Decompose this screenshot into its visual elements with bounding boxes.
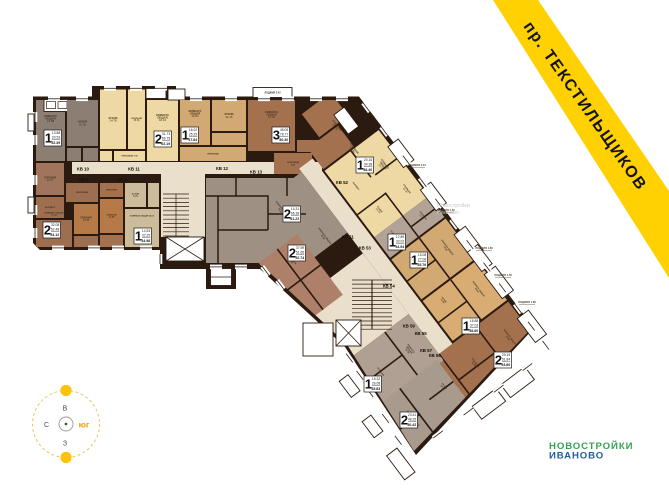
- svg-text:КВ 59: КВ 59: [403, 324, 416, 329]
- svg-text:ПРИХОЖАЯ: ПРИХОЖАЯ: [207, 153, 219, 156]
- svg-text:Новостройки: Новостройки: [437, 202, 470, 209]
- svg-text:52.48: 52.48: [51, 227, 59, 231]
- svg-text:ИВАНОВО: ИВАНОВО: [549, 451, 604, 462]
- svg-text:5.25: 5.25: [133, 195, 138, 198]
- svg-text:51.84: 51.84: [502, 357, 510, 361]
- svg-text:78.77: 78.77: [280, 132, 288, 136]
- svg-text:ПРИХОЖАЯ: ПРИХОЖАЯ: [76, 191, 89, 194]
- svg-text:17.22: 17.22: [51, 214, 58, 217]
- svg-text:36.60: 36.60: [469, 329, 478, 333]
- svg-text:З: З: [63, 441, 67, 448]
- svg-text:37.84: 37.84: [188, 138, 197, 142]
- svg-text:ЛОДЖИЯ 2.04: ЛОДЖИЯ 2.04: [408, 163, 426, 167]
- svg-text:КВ 11: КВ 11: [128, 167, 140, 172]
- svg-text:ПРИХОЖАЯ 7.80: ПРИХОЖАЯ 7.80: [121, 155, 138, 158]
- svg-text:11.15: 11.15: [225, 115, 232, 119]
- svg-text:61.22: 61.22: [290, 217, 299, 221]
- svg-text:48.25: 48.25: [408, 417, 416, 421]
- svg-text:ПРИХОЖАЯ: ПРИХОЖАЯ: [106, 189, 118, 192]
- svg-text:Иваново: Иваново: [437, 210, 459, 216]
- svg-text:34.98: 34.98: [141, 239, 150, 243]
- svg-text:16.02: 16.02: [191, 114, 199, 118]
- svg-text:18.42: 18.42: [159, 118, 167, 122]
- svg-text:53.60: 53.60: [501, 363, 510, 367]
- svg-text:35.76: 35.76: [417, 263, 426, 267]
- svg-text:С: С: [44, 422, 49, 429]
- svg-text:10.35: 10.35: [79, 122, 87, 126]
- svg-text:34.94: 34.94: [395, 245, 404, 249]
- svg-text:КОРИДОР: КОРИДОР: [45, 207, 56, 209]
- svg-text:КВ 51: КВ 51: [342, 234, 355, 239]
- svg-text:КОМНАТА ОБЩАЯ 14.53: КОМНАТА ОБЩАЯ 14.53: [130, 215, 155, 218]
- svg-text:КВ 9: КВ 9: [79, 178, 89, 183]
- svg-text:27.06: 27.06: [418, 257, 426, 261]
- svg-text:46.40: 46.40: [363, 168, 372, 172]
- svg-text:62.19: 62.19: [161, 142, 170, 146]
- svg-text:20.53: 20.53: [52, 135, 60, 139]
- svg-text:13.88: 13.88: [47, 119, 55, 123]
- svg-text:51.65: 51.65: [296, 250, 304, 254]
- svg-text:КВ 8: КВ 8: [117, 178, 127, 183]
- svg-text:66.75: 66.75: [162, 136, 170, 140]
- svg-text:КВ 56: КВ 56: [429, 353, 442, 358]
- svg-text:КВ 52: КВ 52: [336, 180, 349, 185]
- svg-text:13.57: 13.57: [47, 178, 54, 182]
- svg-text:66.38: 66.38: [291, 211, 299, 215]
- svg-text:50.42: 50.42: [407, 423, 416, 427]
- svg-text:26.08: 26.08: [372, 381, 380, 385]
- svg-text:14.78: 14.78: [109, 119, 117, 123]
- svg-text:ЛОДЖИЯ 1.48: ЛОДЖИЯ 1.48: [494, 273, 512, 277]
- svg-text:ЛОДЖИЯ 3.42: ЛОДЖИЯ 3.42: [264, 92, 281, 95]
- svg-text:КВ 54: КВ 54: [383, 284, 396, 289]
- svg-text:32.25: 32.25: [142, 233, 150, 237]
- svg-text:В: В: [63, 406, 68, 413]
- svg-text:52.74: 52.74: [295, 256, 304, 260]
- svg-text:34.38: 34.38: [364, 162, 372, 166]
- svg-text:33.02: 33.02: [396, 239, 404, 243]
- svg-text:37.03: 37.03: [470, 323, 478, 327]
- svg-text:ЛОДЖИЯ 1.88: ЛОДЖИЯ 1.88: [518, 300, 536, 304]
- svg-text:юг: юг: [79, 420, 90, 430]
- svg-text:КВ 53: КВ 53: [359, 245, 372, 250]
- svg-text:КВ 13: КВ 13: [250, 170, 263, 175]
- svg-text:15.35: 15.35: [268, 115, 276, 119]
- svg-text:35.83: 35.83: [371, 387, 380, 391]
- svg-text:КВ 12: КВ 12: [216, 166, 229, 171]
- svg-text:32.39: 32.39: [51, 141, 60, 145]
- svg-text:16.55: 16.55: [83, 218, 90, 222]
- svg-text:80.30: 80.30: [279, 138, 288, 142]
- svg-text:КВ 10: КВ 10: [77, 167, 90, 172]
- svg-text:54.12: 54.12: [50, 233, 59, 237]
- svg-text:16.55: 16.55: [109, 216, 116, 219]
- svg-text:ЛОДЖИЯ 1.86: ЛОДЖИЯ 1.86: [475, 246, 493, 250]
- svg-text:25.25: 25.25: [189, 132, 197, 136]
- svg-text:13.31: 13.31: [133, 119, 140, 122]
- svg-text:КВ 55: КВ 55: [415, 331, 428, 336]
